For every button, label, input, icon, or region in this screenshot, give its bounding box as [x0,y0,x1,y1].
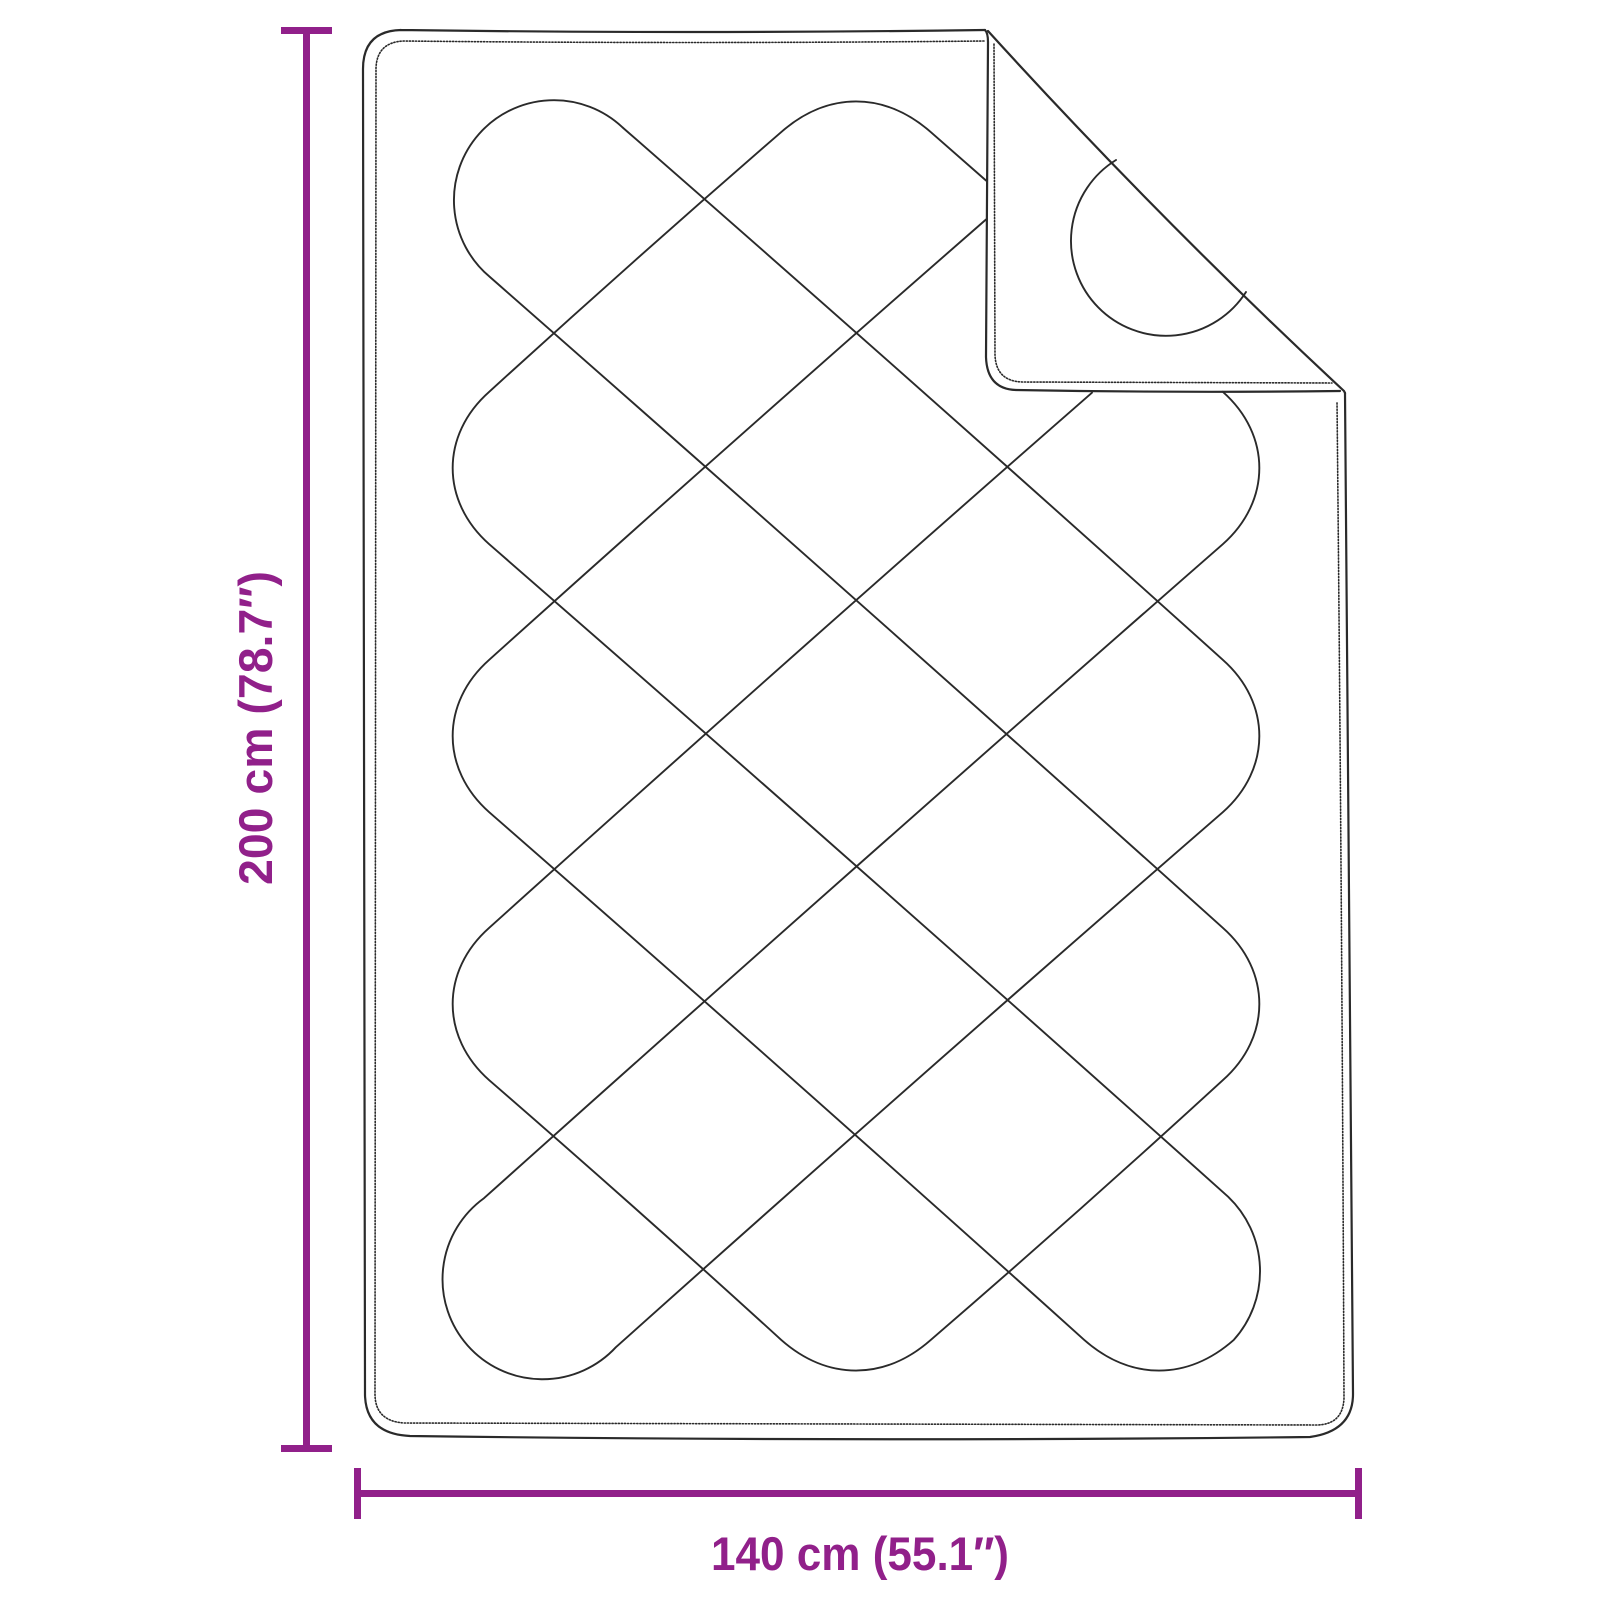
svg-text:140 cm (55.1″): 140 cm (55.1″) [711,1527,1009,1580]
svg-text:200 cm (78.7″): 200 cm (78.7″) [229,571,282,885]
